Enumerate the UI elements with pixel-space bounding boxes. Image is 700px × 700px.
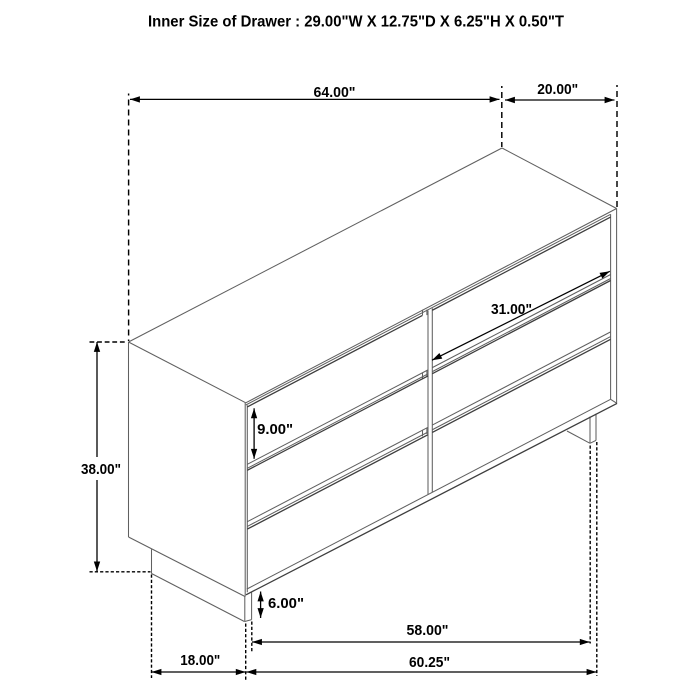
svg-text:64.00": 64.00" (314, 84, 356, 101)
svg-text:31.00": 31.00" (491, 301, 532, 318)
svg-text:20.00": 20.00" (537, 81, 578, 98)
svg-text:60.25": 60.25" (409, 654, 450, 671)
svg-text:6.00": 6.00" (268, 595, 304, 612)
svg-text:18.00": 18.00" (180, 652, 220, 669)
svg-text:58.00": 58.00" (407, 622, 449, 639)
svg-text:38.00": 38.00" (81, 461, 121, 478)
svg-text:Inner Size of Drawer : 29.00"W: Inner Size of Drawer : 29.00"W X 12.75"D… (148, 13, 564, 30)
svg-text:9.00": 9.00" (257, 421, 293, 438)
